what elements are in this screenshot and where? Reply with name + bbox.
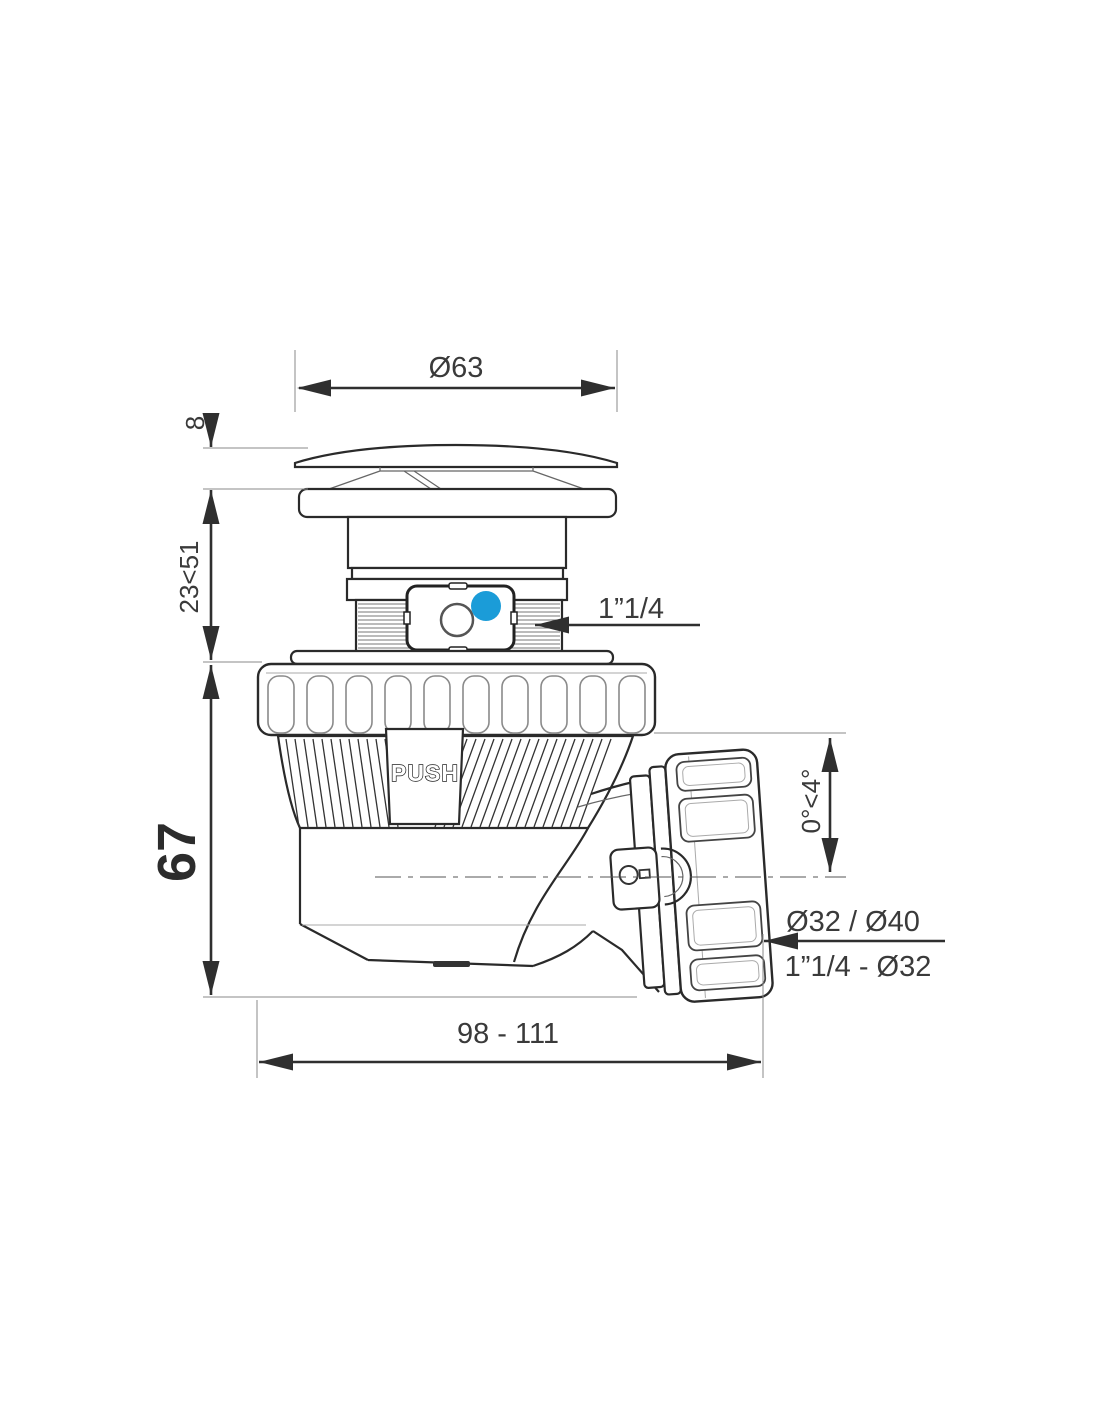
dim-label-length-range: 98 - 111 <box>457 1018 559 1050</box>
outlet-nut-assembly <box>604 749 774 1007</box>
dim-label-inlet-thread: 1”1/4 <box>598 593 664 625</box>
push-button[interactable]: PUSH <box>386 729 463 824</box>
cap-dome <box>295 445 617 467</box>
clip-notch-right <box>511 612 517 624</box>
dim-label-cap-height: 8 <box>180 416 210 430</box>
clip-notch-left <box>404 612 410 624</box>
dim-label-body-height: 67 <box>147 822 207 882</box>
collar-rim <box>291 651 613 664</box>
dim-label-adjust-height: 23<51 <box>174 540 204 613</box>
keyhole-icon <box>619 865 638 884</box>
technical-drawing: PUSH <box>0 0 1100 1422</box>
drain-flange <box>299 489 616 517</box>
nut-ring <box>258 664 655 735</box>
cap-underside-struts <box>329 467 584 489</box>
blue-indicator-dot <box>471 591 501 621</box>
clip-indicator <box>404 583 517 653</box>
push-label: PUSH <box>391 760 459 786</box>
dim-label-top-diameter: Ø63 <box>429 352 484 384</box>
drawing-page: PUSH <box>0 0 1100 1422</box>
siphon-body <box>278 736 661 992</box>
knurled-nut <box>258 651 655 735</box>
ring-a <box>352 568 563 579</box>
white-indicator-dot <box>441 604 473 636</box>
dim-label-outlet-thread: 1”1/4 - Ø32 <box>785 951 932 983</box>
dim-label-angle-range: 0°<4° <box>796 769 826 834</box>
dim-label-outlet-diameters: Ø32 / Ø40 <box>786 906 920 938</box>
bottom-notch <box>433 961 470 967</box>
clip-tab-top <box>449 583 467 589</box>
body-outline <box>300 828 659 992</box>
upper-cylinder <box>348 517 566 568</box>
